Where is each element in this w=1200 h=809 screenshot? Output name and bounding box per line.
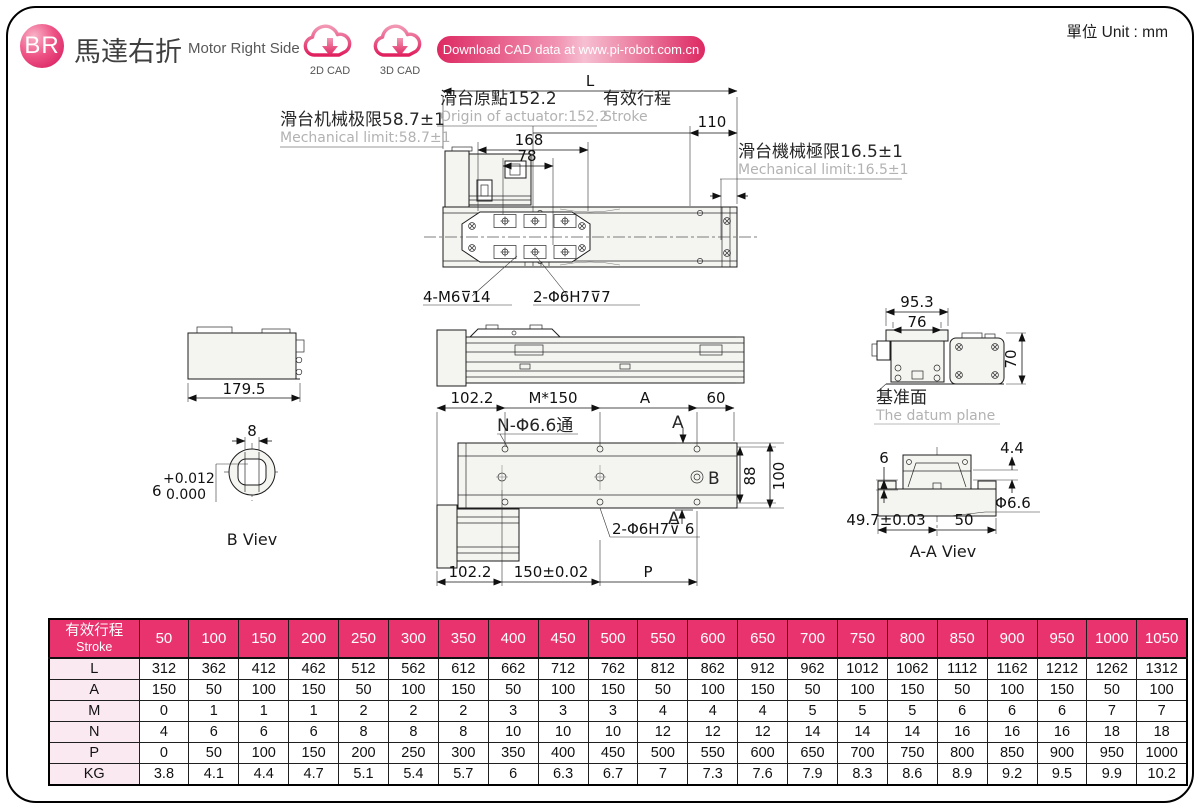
spec-value-cell: 100 [388, 680, 438, 701]
spec-value-cell: 5 [788, 701, 838, 722]
spec-value-cell: 50 [1087, 680, 1137, 701]
stroke-column-header: 800 [887, 619, 937, 658]
spec-value-cell: 100 [538, 680, 588, 701]
spec-value-cell: 7.6 [738, 764, 788, 786]
spec-value-cell: 1000 [1137, 743, 1187, 764]
spec-value-cell: 100 [837, 680, 887, 701]
spec-value-cell: 912 [738, 658, 788, 680]
dim-102-2-top: 102.2 [451, 389, 494, 407]
dim-179-5: 179.5 [223, 380, 266, 398]
spec-value-cell: 12 [638, 722, 688, 743]
dim-4-4: 4.4 [1000, 439, 1024, 457]
spec-value-cell: 150 [289, 680, 339, 701]
stroke-column-header: 1050 [1137, 619, 1187, 658]
dim-78: 78 [517, 147, 536, 165]
spec-value-cell: 900 [1037, 743, 1087, 764]
spec-value-cell: 50 [488, 680, 538, 701]
top-view: L 滑台原點152.2 Origin of actuator:152.2 有效行… [280, 72, 909, 306]
limit-left-cn: 滑台机械极限58.7±1 [280, 110, 445, 130]
dim-A: A [640, 389, 651, 407]
spec-value-cell: 6 [1037, 701, 1087, 722]
stroke-column-header: 850 [937, 619, 987, 658]
leader-2phi6h7: 2-Φ6H7⊽7 [533, 288, 611, 306]
stroke-column-header: 550 [638, 619, 688, 658]
spec-value-cell: 9.2 [987, 764, 1037, 786]
datum-label-cn: 基准面 [876, 388, 927, 408]
b-view: 8 6 +0.012 0.000 B Viev [152, 422, 280, 549]
spec-value-cell: 6 [987, 701, 1037, 722]
dim-49-7: 49.7±0.03 [846, 511, 925, 529]
spec-table-row: M011122233344455566677 [49, 701, 1187, 722]
spec-value-cell: 600 [738, 743, 788, 764]
spec-value-cell: 50 [788, 680, 838, 701]
spec-value-cell: 9.9 [1087, 764, 1137, 786]
spec-value-cell: 8 [339, 722, 389, 743]
row-label: A [49, 680, 139, 701]
spec-value-cell: 700 [837, 743, 887, 764]
spec-table-row: KG3.84.14.44.75.15.45.766.36.777.37.67.9… [49, 764, 1187, 786]
spec-value-cell: 14 [788, 722, 838, 743]
stroke-column-header: 250 [339, 619, 389, 658]
spec-value-cell: 1 [289, 701, 339, 722]
spec-value-cell: 1 [189, 701, 239, 722]
spec-value-cell: 500 [638, 743, 688, 764]
row-label: M [49, 701, 139, 722]
spec-value-cell: 50 [937, 680, 987, 701]
spec-value-cell: 300 [438, 743, 488, 764]
stroke-label-en: Stroke [603, 109, 648, 125]
spec-value-cell: 5.7 [438, 764, 488, 786]
spec-value-cell: 950 [1087, 743, 1137, 764]
stroke-spec-table: 有效行程 Stroke 5010015020025030035040045050… [48, 618, 1188, 786]
stroke-column-header: 1000 [1087, 619, 1137, 658]
tol-upper: +0.012 [163, 471, 215, 487]
spec-value-cell: 8 [388, 722, 438, 743]
spec-value-cell: 100 [987, 680, 1037, 701]
spec-value-cell: 150 [1037, 680, 1087, 701]
spec-value-cell: 14 [887, 722, 937, 743]
dim-L: L [586, 72, 595, 90]
stroke-header-cn: 有效行程 [50, 623, 139, 640]
spec-value-cell: 12 [688, 722, 738, 743]
spec-value-cell: 400 [538, 743, 588, 764]
stroke-column-header: 150 [239, 619, 289, 658]
row-label: KG [49, 764, 139, 786]
spec-value-cell: 562 [388, 658, 438, 680]
aa-view-label: A-A Viev [910, 542, 976, 561]
origin-label-cn: 滑台原點152.2 [440, 89, 557, 109]
spec-value-cell: 6.3 [538, 764, 588, 786]
spec-value-cell: 962 [788, 658, 838, 680]
spec-value-cell: 8.3 [837, 764, 887, 786]
dim-6: 6 [152, 482, 162, 500]
stroke-column-header: 600 [688, 619, 738, 658]
label-B: B [708, 469, 720, 489]
spec-value-cell: 4 [638, 701, 688, 722]
limit-right-en: Mechanical limit:16.5±1 [738, 162, 909, 178]
spec-value-cell: 6.7 [588, 764, 638, 786]
dim-8: 8 [247, 422, 257, 440]
spec-value-cell: 7.9 [788, 764, 838, 786]
spec-value-cell: 6 [189, 722, 239, 743]
dim-6-aa: 6 [879, 449, 889, 467]
spec-value-cell: 14 [837, 722, 887, 743]
spec-value-cell: 10 [538, 722, 588, 743]
spec-value-cell: 18 [1137, 722, 1187, 743]
spec-value-cell: 5.4 [388, 764, 438, 786]
spec-value-cell: 312 [139, 658, 189, 680]
leader-2phi6h7-6: 2-Φ6H7⊽ 6 [612, 520, 694, 538]
stroke-column-header: 200 [289, 619, 339, 658]
spec-value-cell: 4 [738, 701, 788, 722]
spec-value-cell: 50 [189, 743, 239, 764]
dim-102-2-bottom: 102.2 [449, 563, 492, 581]
spec-value-cell: 1062 [887, 658, 937, 680]
spec-value-cell: 1212 [1037, 658, 1087, 680]
spec-value-cell: 6 [937, 701, 987, 722]
spec-value-cell: 5.1 [339, 764, 389, 786]
spec-value-cell: 3 [488, 701, 538, 722]
stroke-column-header: 100 [189, 619, 239, 658]
spec-value-cell: 612 [438, 658, 488, 680]
spec-value-cell: 10 [588, 722, 638, 743]
spec-value-cell: 4.4 [239, 764, 289, 786]
spec-value-cell: 0 [139, 743, 189, 764]
spec-value-cell: 462 [289, 658, 339, 680]
spec-value-cell: 512 [339, 658, 389, 680]
spec-value-cell: 150 [588, 680, 638, 701]
stroke-column-header: 950 [1037, 619, 1087, 658]
spec-value-cell: 10 [488, 722, 538, 743]
stroke-column-header: 450 [538, 619, 588, 658]
spec-value-cell: 12 [738, 722, 788, 743]
spec-value-cell: 18 [1087, 722, 1137, 743]
dim-m150: M*150 [528, 389, 577, 407]
leader-4m6: 4-M6⊽14 [423, 288, 491, 306]
spec-value-cell: 0 [139, 701, 189, 722]
spec-value-cell: 1 [239, 701, 289, 722]
spec-value-cell: 16 [987, 722, 1037, 743]
spec-value-cell: 7 [1087, 701, 1137, 722]
spec-value-cell: 150 [289, 743, 339, 764]
spec-value-cell: 50 [638, 680, 688, 701]
spec-value-cell: 450 [588, 743, 638, 764]
leader-n-phi66: N-Φ6.6通 [497, 416, 573, 436]
spec-value-cell: 6 [289, 722, 339, 743]
stroke-column-header: 50 [139, 619, 189, 658]
spec-value-cell: 800 [937, 743, 987, 764]
spec-value-cell: 1162 [987, 658, 1037, 680]
spec-value-cell: 250 [388, 743, 438, 764]
spec-table-row: N46668881010101212121414141616161818 [49, 722, 1187, 743]
spec-value-cell: 1012 [837, 658, 887, 680]
spec-value-cell: 4 [139, 722, 189, 743]
plan-view: B 102.2 M*150 A 60 N-Φ6.6通 A A [437, 389, 788, 586]
spec-value-cell: 50 [189, 680, 239, 701]
spec-value-cell: 6 [239, 722, 289, 743]
stroke-header-cell: 有效行程 Stroke [49, 619, 139, 658]
spec-value-cell: 2 [339, 701, 389, 722]
datasheet-page: BR 馬達右折 Motor Right Side 2D CAD 3D CAD D… [0, 0, 1200, 809]
stroke-column-header: 500 [588, 619, 638, 658]
datum-label-en: The datum plane [875, 408, 995, 424]
spec-value-cell: 7 [638, 764, 688, 786]
spec-value-cell: 3.8 [139, 764, 189, 786]
dim-150: 150±0.02 [514, 563, 589, 581]
spec-value-cell: 8.9 [937, 764, 987, 786]
dim-76: 76 [907, 313, 926, 331]
spec-value-cell: 150 [887, 680, 937, 701]
section-A-top: A [672, 413, 684, 433]
spec-value-cell: 100 [239, 680, 289, 701]
spec-value-cell: 650 [788, 743, 838, 764]
stroke-column-header: 350 [438, 619, 488, 658]
row-label: N [49, 722, 139, 743]
spec-value-cell: 662 [488, 658, 538, 680]
spec-value-cell: 5 [837, 701, 887, 722]
spec-value-cell: 762 [588, 658, 638, 680]
spec-value-cell: 16 [1037, 722, 1087, 743]
spec-value-cell: 362 [189, 658, 239, 680]
spec-value-cell: 550 [688, 743, 738, 764]
spec-value-cell: 150 [139, 680, 189, 701]
dim-50: 50 [954, 511, 973, 529]
dim-P: P [643, 563, 652, 581]
spec-value-cell: 7 [1137, 701, 1187, 722]
spec-value-cell: 150 [438, 680, 488, 701]
stroke-header-en: Stroke [50, 640, 139, 654]
row-label: P [49, 743, 139, 764]
spec-value-cell: 412 [239, 658, 289, 680]
spec-table-body: L312362412462512562612662712762812862912… [49, 658, 1187, 785]
spec-value-cell: 862 [688, 658, 738, 680]
spec-value-cell: 2 [388, 701, 438, 722]
spec-value-cell: 50 [339, 680, 389, 701]
spec-value-cell: 10.2 [1137, 764, 1187, 786]
spec-value-cell: 8 [438, 722, 488, 743]
spec-value-cell: 3 [538, 701, 588, 722]
spec-table: 有效行程 Stroke 5010015020025030035040045050… [48, 618, 1188, 786]
dim-60: 60 [706, 389, 725, 407]
spec-value-cell: 1262 [1087, 658, 1137, 680]
spec-value-cell: 150 [738, 680, 788, 701]
spec-value-cell: 2 [438, 701, 488, 722]
stroke-column-header: 400 [488, 619, 538, 658]
spec-value-cell: 8.6 [887, 764, 937, 786]
stroke-label-cn: 有效行程 [603, 89, 671, 109]
stroke-column-header: 300 [388, 619, 438, 658]
b-view-label: B Viev [227, 530, 277, 549]
spec-value-cell: 712 [538, 658, 588, 680]
stroke-column-header: 900 [987, 619, 1037, 658]
spec-table-row: L312362412462512562612662712762812862912… [49, 658, 1187, 680]
spec-value-cell: 6 [488, 764, 538, 786]
spec-value-cell: 1312 [1137, 658, 1187, 680]
spec-table-row: A150501001505010015050100150501001505010… [49, 680, 1187, 701]
tol-lower: 0.000 [166, 487, 206, 503]
end-view: 95.3 76 70 基准面 The datum plane [872, 293, 1026, 424]
spec-value-cell: 750 [887, 743, 937, 764]
limit-left-en: Mechanical limit:58.7±1 [280, 130, 451, 146]
spec-table-header-row: 有效行程 Stroke 5010015020025030035040045050… [49, 619, 1187, 658]
limit-right-cn: 滑台機械極限16.5±1 [738, 142, 903, 162]
spec-value-cell: 100 [688, 680, 738, 701]
side-view: 179.5 [188, 327, 304, 402]
spec-table-row: P050100150200250300350400450500550600650… [49, 743, 1187, 764]
dim-88: 88 [741, 466, 759, 485]
stroke-column-header: 650 [738, 619, 788, 658]
dim-95-3: 95.3 [900, 293, 933, 311]
spec-value-cell: 200 [339, 743, 389, 764]
stroke-column-header: 700 [788, 619, 838, 658]
spec-value-cell: 4 [688, 701, 738, 722]
spec-value-cell: 1112 [937, 658, 987, 680]
dim-100: 100 [770, 462, 788, 491]
spec-value-cell: 4.1 [189, 764, 239, 786]
spec-value-cell: 350 [488, 743, 538, 764]
spec-value-cell: 3 [588, 701, 638, 722]
spec-value-cell: 16 [937, 722, 987, 743]
spec-value-cell: 850 [987, 743, 1037, 764]
spec-value-cell: 5 [887, 701, 937, 722]
row-label: L [49, 658, 139, 680]
spec-value-cell: 7.3 [688, 764, 738, 786]
dim-70: 70 [1002, 349, 1020, 368]
dim-phi-6-6: Φ6.6 [995, 494, 1031, 512]
spec-value-cell: 4.7 [289, 764, 339, 786]
aa-view: 6 4.4 Φ6.6 49.7±0.03 50 A-A Viev [846, 439, 1040, 561]
spec-value-cell: 812 [638, 658, 688, 680]
stroke-column-header: 750 [837, 619, 887, 658]
origin-label-en: Origin of actuator:152.2 [440, 109, 608, 125]
spec-value-cell: 100 [1137, 680, 1187, 701]
spec-value-cell: 100 [239, 743, 289, 764]
dim-110: 110 [698, 113, 727, 131]
spec-value-cell: 9.5 [1037, 764, 1087, 786]
elevation-view [437, 325, 744, 386]
